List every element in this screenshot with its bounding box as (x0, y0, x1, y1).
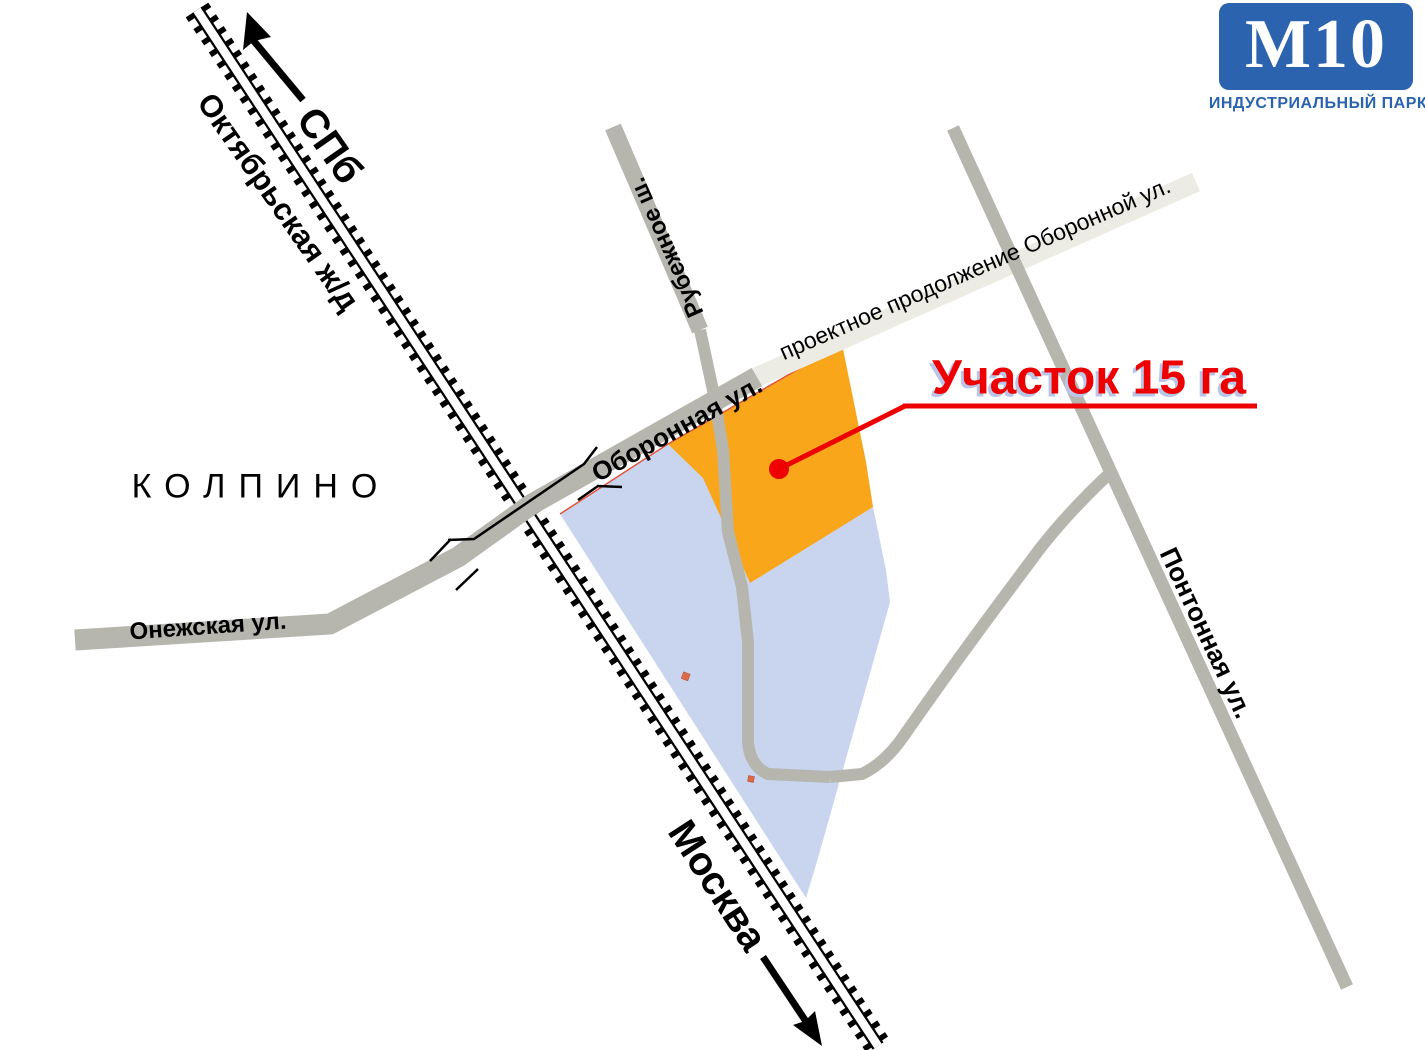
plot-callout-dot (769, 459, 789, 479)
plot-area-label: Участок 15 га (932, 351, 1246, 406)
moscow-direction-arrow (763, 957, 822, 1046)
map-page: СПб Октябрьская ж/д Москва КОЛПИНО Онежс… (0, 0, 1425, 1050)
m10-logo: М10 (1219, 3, 1413, 90)
m10-logo-subtitle: ИНДУСТРИАЛЬНЫЙ ПАРК (1209, 95, 1425, 113)
label-city-kolpino: КОЛПИНО (132, 468, 391, 507)
m10-logo-title: М10 (1245, 10, 1387, 84)
building-marker (748, 776, 755, 783)
